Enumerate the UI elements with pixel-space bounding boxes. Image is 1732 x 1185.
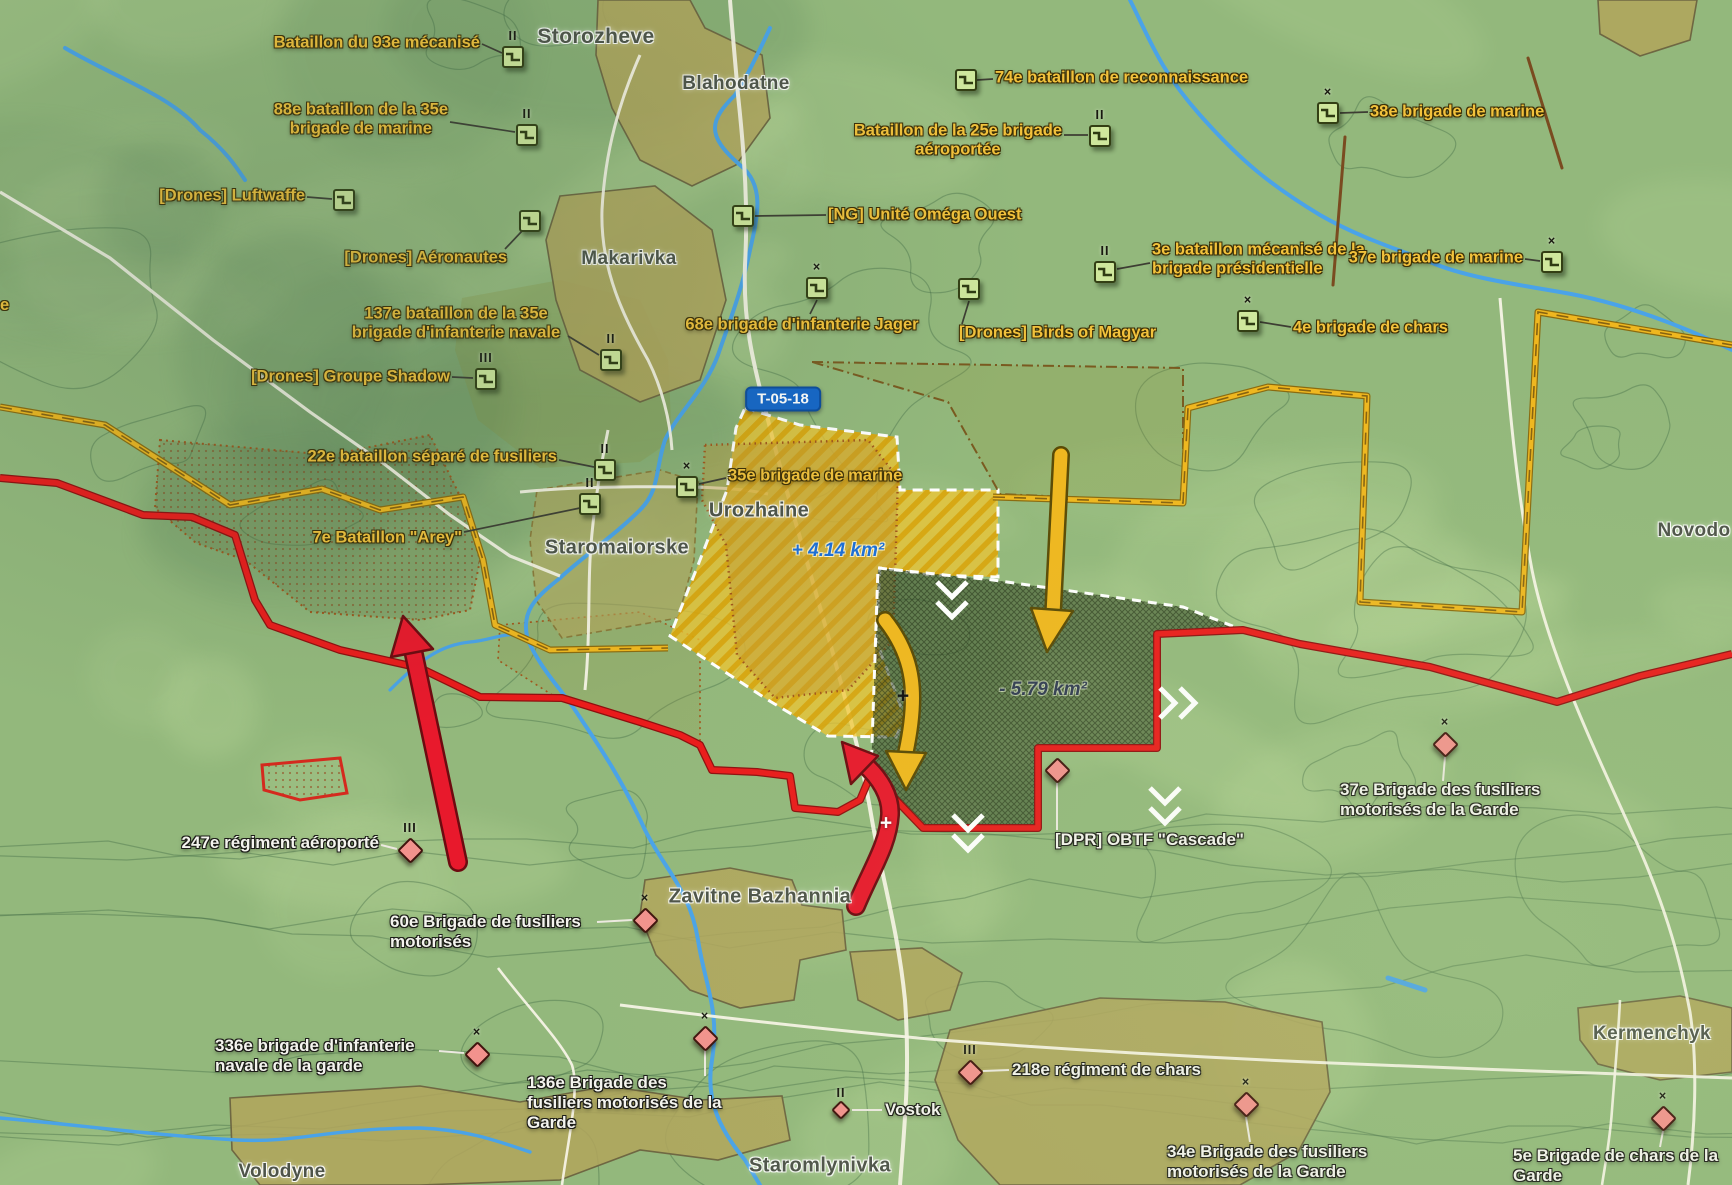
echelon-mark: II [1065, 108, 1135, 122]
ua-unit-icon-drones-a-ronautes[interactable] [519, 210, 541, 232]
label-layer: T-05-18 + 4.14 km² - 5.79 km² e Storozhe… [0, 0, 1732, 1185]
town-label-zavitne-bazhannia: Zavitne Bazhannia [669, 886, 851, 909]
ru-unit-label-336e-brigade-d-infanterie-navale-de-la-g: 336e brigade d'infanterie navale de la g… [215, 1036, 415, 1076]
ua-unit-glyph [1319, 104, 1337, 122]
echelon-mark: × [1517, 234, 1587, 248]
ua-unit-icon-37e-brigade-de-marine[interactable] [1541, 251, 1563, 273]
ru-unit-label-247e-r-giment-a-roport: 247e régiment aéroporté [182, 833, 379, 853]
ua-unit-label-drones-birds-of-magyar: [Drones] Birds of Magyar [959, 323, 1156, 342]
town-label-staromaiorske: Staromaiorske [545, 537, 689, 560]
ru-unit-icon-136e-brigade-des-fusiliers-motoris-s-de-[interactable] [692, 1025, 719, 1052]
ua-unit-icon-3e-bataillon-m-canis-de-la-brigade-pr-si[interactable] [1094, 261, 1116, 283]
ua-unit-glyph [1096, 263, 1114, 281]
cross-marker-1: + [897, 686, 909, 707]
ua-unit-icon-bataillon-du-93e-m-canis[interactable] [502, 46, 524, 68]
ua-unit-icon-drones-luftwaffe[interactable] [333, 189, 355, 211]
ua-unit-glyph [678, 478, 696, 496]
town-label-volodyne: Volodyne [238, 1161, 325, 1183]
echelon-mark: × [1213, 293, 1283, 307]
ru-unit-icon-37e-brigade-des-fusiliers-motoris-s-de-l[interactable] [1432, 731, 1459, 758]
edge-cut-label: e [0, 296, 9, 315]
ua-unit-label-137e-bataillon-de-la-35e-brigade-d-infan: 137e bataillon de la 35e brigade d'infan… [352, 305, 560, 344]
echelon-mark: × [1211, 1075, 1281, 1089]
ru-unit-icon-247e-r-giment-a-roport[interactable] [397, 837, 424, 864]
echelon-mark: II [570, 442, 640, 456]
ua-unit-icon-137e-bataillon-de-la-35e-brigade-d-infan[interactable] [600, 349, 622, 371]
ua-unit-icon-68e-brigade-d-infanterie-jager[interactable] [806, 277, 828, 299]
ua-unit-icon-74e-bataillon-de-reconnaissance[interactable] [955, 69, 977, 91]
ua-unit-glyph [734, 207, 752, 225]
ru-unit-icon-dpr-obtf-cascade[interactable] [1044, 757, 1071, 784]
ua-unit-glyph [957, 71, 975, 89]
town-label-kermenchyk: Kermenchyk [1593, 1023, 1711, 1045]
echelon-mark: × [610, 891, 680, 905]
ua-unit-label-drones-groupe-shadow: [Drones] Groupe Shadow [251, 367, 450, 386]
ua-unit-glyph [335, 191, 353, 209]
ru-unit-label-218e-r-giment-de-chars: 218e régiment de chars [1012, 1060, 1201, 1080]
ua-unit-label-3e-bataillon-m-canis-de-la-brigade-pr-si: 3e bataillon mécanisé de la brigade prés… [1152, 241, 1365, 280]
echelon-mark: × [1293, 85, 1363, 99]
ua-unit-glyph [1239, 312, 1257, 330]
ua-unit-label-ng-unit-om-ga-ouest: [NG] Unité Oméga Ouest [828, 205, 1021, 224]
ua-unit-glyph [581, 495, 599, 513]
town-label-staromlynivka: Staromlynivka [749, 1155, 891, 1178]
ru-unit-label-5e-brigade-de-chars-de-la-garde: 5e Brigade de chars de la Garde [1513, 1146, 1718, 1185]
ua-unit-label-68e-brigade-d-infanterie-jager: 68e brigade d'infanterie Jager [685, 315, 918, 334]
echelon-mark: × [782, 260, 852, 274]
ua-unit-icon-7e-bataillon-arey[interactable] [579, 493, 601, 515]
town-label-urozhaine: Urozhaine [709, 500, 809, 523]
ua-unit-label-4e-brigade-de-chars: 4e brigade de chars [1293, 318, 1448, 337]
echelon-mark: × [1410, 715, 1480, 729]
ua-unit-glyph [808, 279, 826, 297]
ru-unit-label-37e-brigade-des-fusiliers-motoris-s-de-l: 37e Brigade des fusiliers motorisés de l… [1340, 780, 1540, 820]
echelon-mark: III [451, 351, 521, 365]
echelon-mark: × [652, 459, 722, 473]
ua-unit-glyph [1091, 127, 1109, 145]
ru-unit-icon-5e-brigade-de-chars-de-la-garde[interactable] [1650, 1105, 1677, 1132]
ua-unit-label-22e-bataillon-s-par-de-fusiliers: 22e bataillon séparé de fusiliers [308, 447, 557, 466]
echelon-mark: III [935, 1043, 1005, 1057]
echelon-mark: × [442, 1025, 512, 1039]
cross-marker-2: + [880, 813, 892, 834]
echelon-mark: II [555, 476, 625, 490]
ua-unit-glyph [1543, 253, 1561, 271]
road-badge: T-05-18 [745, 387, 821, 412]
ua-unit-glyph [518, 126, 536, 144]
echelon-mark: II [478, 29, 548, 43]
ru-unit-label-34e-brigade-des-fusiliers-motoris-s-de-l: 34e Brigade des fusiliers motorisés de l… [1167, 1142, 1367, 1182]
ru-unit-label-vostok: Vostok [885, 1100, 940, 1120]
ua-unit-glyph [960, 280, 978, 298]
ua-unit-icon-88e-bataillon-de-la-35e-brigade-de-marin[interactable] [516, 124, 538, 146]
ua-unit-icon-bataillon-de-la-25e-brigade-a-roport-e[interactable] [1089, 125, 1111, 147]
ua-unit-label-drones-luftwaffe: [Drones] Luftwaffe [159, 186, 305, 205]
ua-unit-glyph [521, 212, 539, 230]
ua-unit-label-38e-brigade-de-marine: 38e brigade de marine [1370, 102, 1544, 121]
ru-unit-icon-34e-brigade-des-fusiliers-motoris-s-de-l[interactable] [1233, 1091, 1260, 1118]
ru-unit-icon-218e-r-giment-de-chars[interactable] [957, 1059, 984, 1086]
ua-unit-icon-drones-birds-of-magyar[interactable] [958, 278, 980, 300]
ua-unit-glyph [477, 370, 495, 388]
ua-unit-icon-4e-brigade-de-chars[interactable] [1237, 310, 1259, 332]
ua-unit-glyph [504, 48, 522, 66]
echelon-mark: II [1070, 244, 1140, 258]
town-label-blahodatne: Blahodatne [682, 73, 789, 95]
area-loss-label: - 5.79 km² [999, 679, 1087, 701]
echelon-mark: II [492, 107, 562, 121]
ru-unit-label-60e-brigade-de-fusiliers-motoris-s: 60e Brigade de fusiliers motorisés [390, 912, 581, 952]
ru-unit-icon-vostok[interactable] [831, 1100, 851, 1120]
ua-unit-icon-38e-brigade-de-marine[interactable] [1317, 102, 1339, 124]
ua-unit-label-bataillon-du-93e-m-canis: Bataillon du 93e mécanisé [274, 33, 480, 52]
ua-unit-label-35e-brigade-de-marine: 35e brigade de marine [728, 466, 902, 485]
ru-unit-label-dpr-obtf-cascade: [DPR] OBTF "Cascade" [1055, 830, 1244, 850]
echelon-mark: II [806, 1086, 876, 1100]
echelon-mark: III [375, 821, 445, 835]
ua-unit-label-88e-bataillon-de-la-35e-brigade-de-marin: 88e bataillon de la 35e brigade de marin… [274, 101, 448, 140]
ua-unit-label-drones-a-ronautes: [Drones] Aéronautes [344, 248, 507, 267]
ua-unit-label-74e-bataillon-de-reconnaissance: 74e bataillon de reconnaissance [995, 68, 1248, 87]
town-label-storozheve: Storozheve [537, 25, 654, 49]
ua-unit-icon-ng-unit-om-ga-ouest[interactable] [732, 205, 754, 227]
area-gain-label: + 4.14 km² [792, 540, 884, 562]
town-label-makarivka: Makarivka [581, 248, 677, 270]
ua-unit-glyph [602, 351, 620, 369]
ua-unit-label-37e-brigade-de-marine: 37e brigade de marine [1349, 248, 1523, 267]
town-label-novodo: Novodo [1657, 520, 1730, 542]
map-canvas[interactable]: T-05-18 + 4.14 km² - 5.79 km² e Storozhe… [0, 0, 1732, 1185]
ua-unit-icon-35e-brigade-de-marine[interactable] [676, 476, 698, 498]
echelon-mark: II [576, 332, 646, 346]
echelon-mark: × [670, 1009, 740, 1023]
echelon-mark: × [1628, 1089, 1698, 1103]
ru-unit-icon-60e-brigade-de-fusiliers-motoris-s[interactable] [632, 907, 659, 934]
ru-unit-icon-336e-brigade-d-infanterie-navale-de-la-g[interactable] [464, 1041, 491, 1068]
ua-unit-icon-drones-groupe-shadow[interactable] [475, 368, 497, 390]
ua-unit-label-bataillon-de-la-25e-brigade-a-roport-e: Bataillon de la 25e brigade aéroportée [854, 122, 1062, 161]
ru-unit-label-136e-brigade-des-fusiliers-motoris-s-de-: 136e Brigade des fusiliers motorisés de … [527, 1073, 722, 1133]
ua-unit-label-7e-bataillon-arey: 7e Bataillon "Arey" [312, 528, 462, 547]
